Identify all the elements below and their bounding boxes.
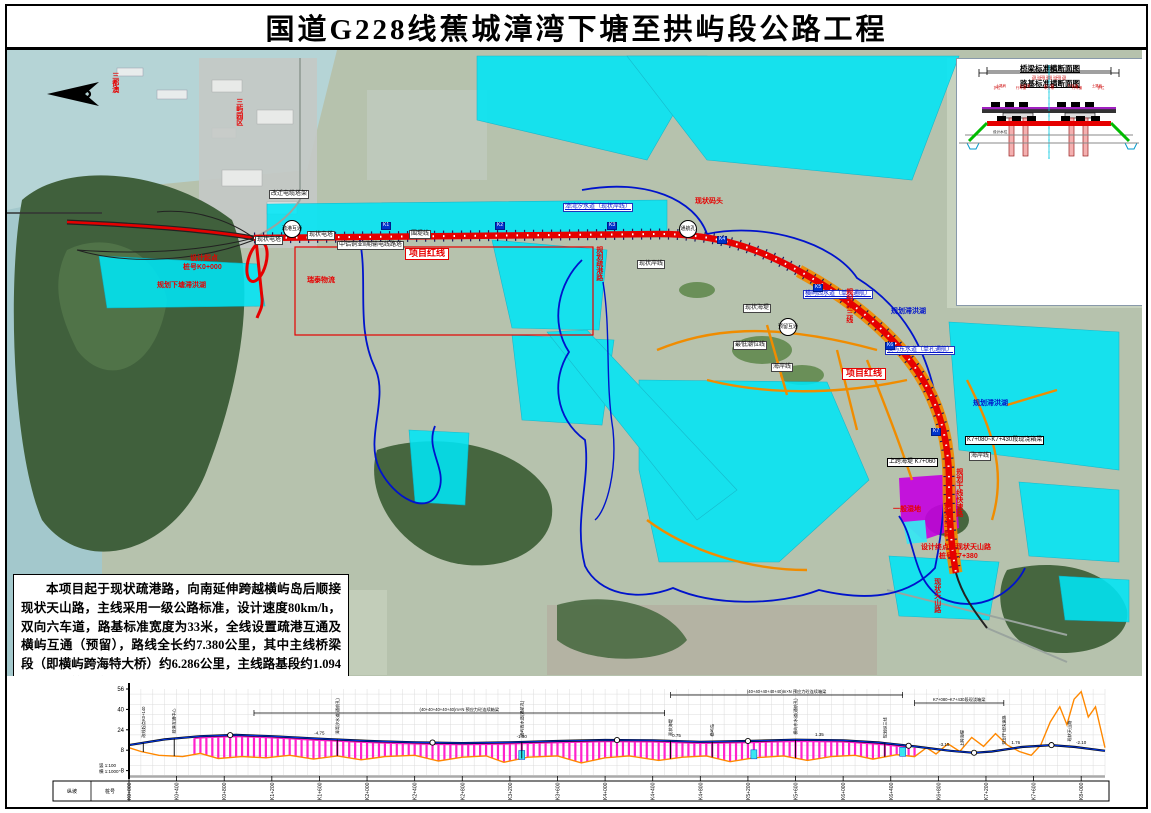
svg-text:K5+600: K5+600 (794, 782, 800, 800)
map-label: 漳湾汐水道（现状岸线） (563, 203, 633, 212)
map-label: 横屿东水道（单孔通航） (885, 346, 955, 355)
map-label: 围堤线 (409, 230, 431, 239)
svg-text:行车道: 行车道 (1020, 83, 1031, 88)
map-label: 最低潮位线 (733, 341, 767, 350)
svg-text:K7+080~K7+430段现浇箱梁: K7+080~K7+430段现浇箱梁 (933, 696, 986, 703)
svg-text:土路肩: 土路肩 (996, 83, 1006, 88)
svg-text:K6+800: K6+800 (936, 782, 942, 800)
svg-text:桩号: 桩号 (105, 788, 115, 795)
km-marker: K7 (931, 428, 941, 436)
map-label: 设计起点 (190, 255, 218, 263)
svg-text:K2+000: K2+000 (365, 782, 371, 800)
map-label: 上跨海堤 K7+060 (887, 458, 938, 467)
svg-text:规划纵三线: 规划纵三线 (881, 716, 888, 738)
svg-text:横屿东水道(通航孔): 横屿东水道(通航孔) (792, 698, 799, 735)
svg-text:漳湾汐水道(通航孔): 漳湾汐水道(通航孔) (334, 698, 341, 735)
svg-text:8: 8 (121, 748, 125, 754)
km-marker: K3 (607, 222, 617, 230)
cross-section-inset: 桥梁标准横断面图 3350 50 1475 300 1475 50 护栏行车道中… (956, 58, 1142, 306)
svg-text:K3+600: K3+600 (555, 782, 561, 800)
svg-text:(40+40+40+40+40)m×N 预应力砼连续箱梁: (40+40+40+40+40)m×N 预应力砼连续箱梁 (747, 688, 827, 695)
svg-text:K3+200: K3+200 (508, 782, 514, 800)
map-label: 海岸线 (969, 452, 991, 461)
title-bar: 国道G228线蕉城漳湾下塘至拱屿段公路工程 (7, 6, 1146, 50)
roadbed-section-diagram: 3300 75 1425 300 1425 75 土路肩行车道中分带行车道土路肩 (957, 59, 1141, 169)
drawing-sheet: 国道G228线蕉城漳湾下塘至拱屿段公路工程 (5, 4, 1148, 809)
map-label: 项目红线 (842, 368, 886, 380)
svg-text:K4+800: K4+800 (698, 782, 704, 800)
svg-text:(40+40+40+40+40)m×N 预应力砼连续箱梁: (40+40+40+40+40)m×N 预应力砼连续箱梁 (420, 706, 500, 713)
map-label: 瑞泰物流 (307, 277, 335, 285)
map-area: 桥梁标准横断面图 3350 50 1475 300 1475 50 护栏行车道中… (7, 50, 1142, 676)
svg-text:K0+000: K0+000 (127, 782, 133, 800)
map-label: 规划滞洪湖 (891, 308, 926, 316)
svg-text:K0+800: K0+800 (222, 782, 228, 800)
svg-text:K8+000: K8+000 (1079, 782, 1085, 800)
map-label: 现状电塔 (255, 236, 283, 245)
svg-text:-3.15: -3.15 (939, 742, 950, 747)
project-description-box: 本项目起于现状疏港路，向南延伸跨越横屿岛后顺接现状天山路，主线采用一级公路标准，… (13, 574, 349, 676)
map-label: 一般湿地 (893, 506, 921, 514)
map-label: 三屿园区 (235, 98, 243, 126)
map-label: 项目红线 (405, 248, 449, 260)
svg-text:K4+000: K4+000 (603, 782, 609, 800)
km-marker: K5 (813, 284, 823, 292)
svg-text:K1+600: K1+600 (317, 782, 323, 800)
svg-text:改线起点K0+140: 改线起点K0+140 (140, 706, 147, 738)
km-marker: K4 (717, 236, 727, 244)
svg-text:竖 1:100: 竖 1:100 (99, 762, 117, 768)
map-label: 中铝铜业Ⅱ期输电线路塔 (337, 241, 404, 250)
map-label: 现状海堤 (743, 304, 771, 313)
map-label: 桩号K0+000 (183, 264, 222, 272)
svg-text:K2+800: K2+800 (460, 782, 466, 800)
profile-chart: -4.75-1.300.751.35-3.151.76-2.10(40+40+4… (7, 679, 1142, 803)
svg-text:1.35: 1.35 (815, 732, 824, 737)
map-label: 通航孔 (679, 220, 697, 238)
svg-text:K5+200: K5+200 (746, 782, 752, 800)
svg-text:疏港互通中心: 疏港互通中心 (171, 708, 178, 734)
svg-text:现状天山路: 现状天山路 (1066, 720, 1073, 742)
map-label: 桩号K7+380 (939, 553, 978, 561)
project-description-text: 本项目起于现状疏港路，向南延伸跨越横屿岛后顺接现状天山路，主线采用一级公路标准，… (21, 580, 341, 676)
map-label: 规划滞洪湖 (973, 400, 1008, 408)
svg-text:-4.75: -4.75 (314, 731, 325, 736)
svg-text:行车道: 行车道 (1068, 83, 1079, 88)
svg-text:现状海堤: 现状海堤 (667, 718, 674, 736)
page-title: 国道G228线蕉城漳湾下塘至拱屿段公路工程 (265, 6, 887, 48)
map-label: 规划疏港路 (595, 246, 603, 281)
map-label: 三都澳 (111, 72, 119, 93)
svg-text:K4+400: K4+400 (651, 782, 657, 800)
svg-text:-2.10: -2.10 (1076, 740, 1087, 745)
map-label: 设计终点接现状天山路 (921, 544, 991, 552)
svg-text:K1+200: K1+200 (270, 782, 276, 800)
map-label: 规划纵三线 (845, 288, 853, 323)
svg-text:40: 40 (117, 707, 124, 713)
svg-text:-8: -8 (119, 769, 125, 775)
svg-text:K0+400: K0+400 (175, 782, 181, 800)
svg-text:56: 56 (117, 687, 124, 693)
svg-text:横屿西水道(通航孔): 横屿西水道(通航孔) (518, 700, 525, 737)
svg-text:0.75: 0.75 (672, 733, 681, 738)
map-label: 规划下塘滞洪湖 (157, 282, 206, 290)
map-label: K7+080~K7+430段现浇箱梁 (965, 436, 1044, 445)
map-label: 现状码头 (695, 198, 723, 206)
svg-text:纵坡: 纵坡 (67, 788, 77, 795)
svg-text:1.76: 1.76 (1011, 740, 1020, 745)
svg-text:K7+200: K7+200 (984, 782, 990, 800)
svg-text:24: 24 (117, 728, 124, 734)
svg-text:K2+400: K2+400 (413, 782, 419, 800)
map-label: 现状岸线 (637, 260, 665, 269)
km-marker: K6 (885, 342, 895, 350)
map-label: 现状天山路 (933, 578, 941, 613)
map-label: 预留互通 (779, 318, 797, 336)
map-label: 改迁电缆塔架 (269, 190, 309, 199)
svg-text:横屿岛: 横屿岛 (709, 724, 716, 737)
svg-text:K6+000: K6+000 (841, 782, 847, 800)
km-marker: K1 (381, 222, 391, 230)
svg-text:上跨海堤: 上跨海堤 (959, 729, 966, 747)
svg-text:K6+400: K6+400 (889, 782, 895, 800)
map-label: 疏港互通 (283, 220, 301, 238)
map-label: 规划次干路 (943, 502, 951, 537)
map-label: 现状电塔 (307, 231, 335, 240)
map-label: 海岸线 (771, 363, 793, 372)
svg-text:横 1:1000: 横 1:1000 (99, 768, 119, 775)
svg-text:土路肩: 土路肩 (1092, 83, 1102, 88)
svg-text:规划干线快速路: 规划干线快速路 (1000, 715, 1007, 745)
profile-svg: -4.75-1.300.751.35-3.151.76-2.10(40+40+4… (7, 679, 1142, 803)
km-marker: K2 (495, 222, 505, 230)
svg-text:K7+600: K7+600 (1032, 782, 1038, 800)
map-label: 规划干线快速路 (955, 468, 963, 517)
